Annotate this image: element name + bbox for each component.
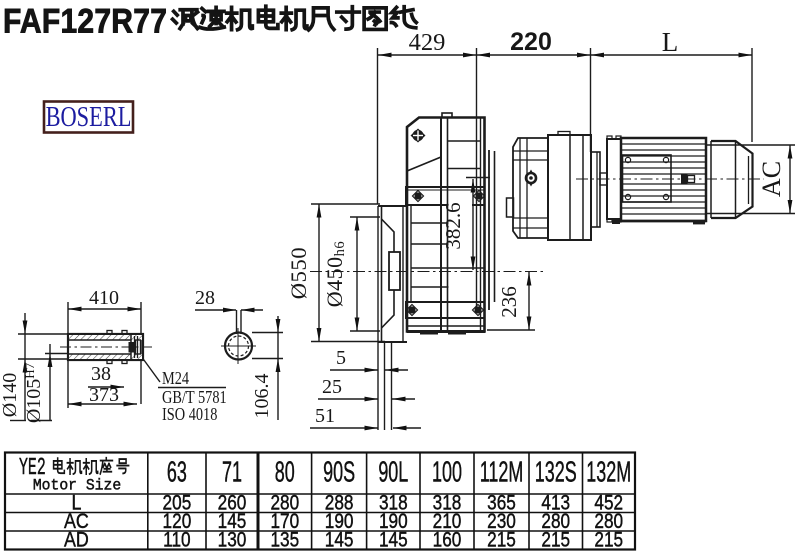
svg-text:132S: 132S xyxy=(535,456,577,488)
svg-text:ISO 4018: ISO 4018 xyxy=(162,406,217,425)
svg-text:BOSERL: BOSERL xyxy=(46,102,132,133)
svg-text:215: 215 xyxy=(487,529,516,552)
svg-text:80: 80 xyxy=(275,456,295,488)
svg-text:100: 100 xyxy=(432,456,462,488)
svg-text:5: 5 xyxy=(336,347,346,369)
svg-text:Ø105H7: Ø105H7 xyxy=(22,362,45,423)
svg-text:Motor Size: Motor Size xyxy=(33,476,121,494)
svg-text:L: L xyxy=(662,27,679,57)
svg-text:25: 25 xyxy=(322,376,342,398)
svg-text:130: 130 xyxy=(218,529,247,552)
svg-text:71: 71 xyxy=(222,456,242,488)
svg-text:51: 51 xyxy=(315,405,335,427)
svg-text:FAF127R77: FAF127R77 xyxy=(3,2,167,40)
svg-text:90S: 90S xyxy=(323,456,355,488)
svg-text:382.6: 382.6 xyxy=(441,202,465,249)
svg-text:Ø450h6: Ø450h6 xyxy=(322,241,348,307)
svg-text:90L: 90L xyxy=(378,456,408,488)
svg-text:28: 28 xyxy=(195,287,215,309)
svg-text:373: 373 xyxy=(89,384,119,406)
svg-text:Ø140: Ø140 xyxy=(0,373,21,417)
svg-text:Ø550: Ø550 xyxy=(286,247,311,299)
svg-text:135: 135 xyxy=(270,529,299,552)
svg-text:236: 236 xyxy=(497,286,521,318)
svg-text:112M: 112M xyxy=(480,456,524,488)
svg-text:106.4: 106.4 xyxy=(251,374,273,419)
svg-text:110: 110 xyxy=(163,529,190,552)
svg-text:63: 63 xyxy=(167,456,187,488)
svg-text:M24: M24 xyxy=(162,370,189,389)
svg-text:145: 145 xyxy=(325,529,354,552)
svg-text:410: 410 xyxy=(89,287,119,309)
svg-text:215: 215 xyxy=(541,529,570,552)
svg-text:160: 160 xyxy=(433,529,462,552)
svg-text:132M: 132M xyxy=(586,456,631,488)
svg-text:145: 145 xyxy=(379,529,408,552)
svg-text:38: 38 xyxy=(91,363,111,385)
svg-text:GB/T 5781: GB/T 5781 xyxy=(162,389,227,408)
svg-text:429: 429 xyxy=(409,29,446,56)
svg-text:220: 220 xyxy=(510,28,552,56)
svg-text:AC: AC xyxy=(757,161,786,197)
svg-text:AD: AD xyxy=(64,528,89,552)
svg-text:215: 215 xyxy=(594,529,623,552)
